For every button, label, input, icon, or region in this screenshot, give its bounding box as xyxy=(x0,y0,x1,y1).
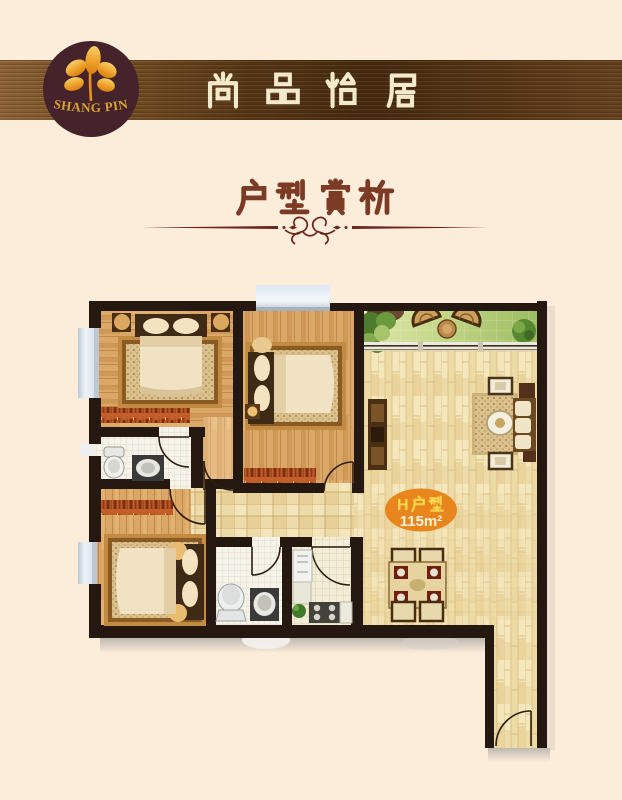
svg-text:H: H xyxy=(397,497,409,514)
svg-text:115m²: 115m² xyxy=(400,513,443,530)
